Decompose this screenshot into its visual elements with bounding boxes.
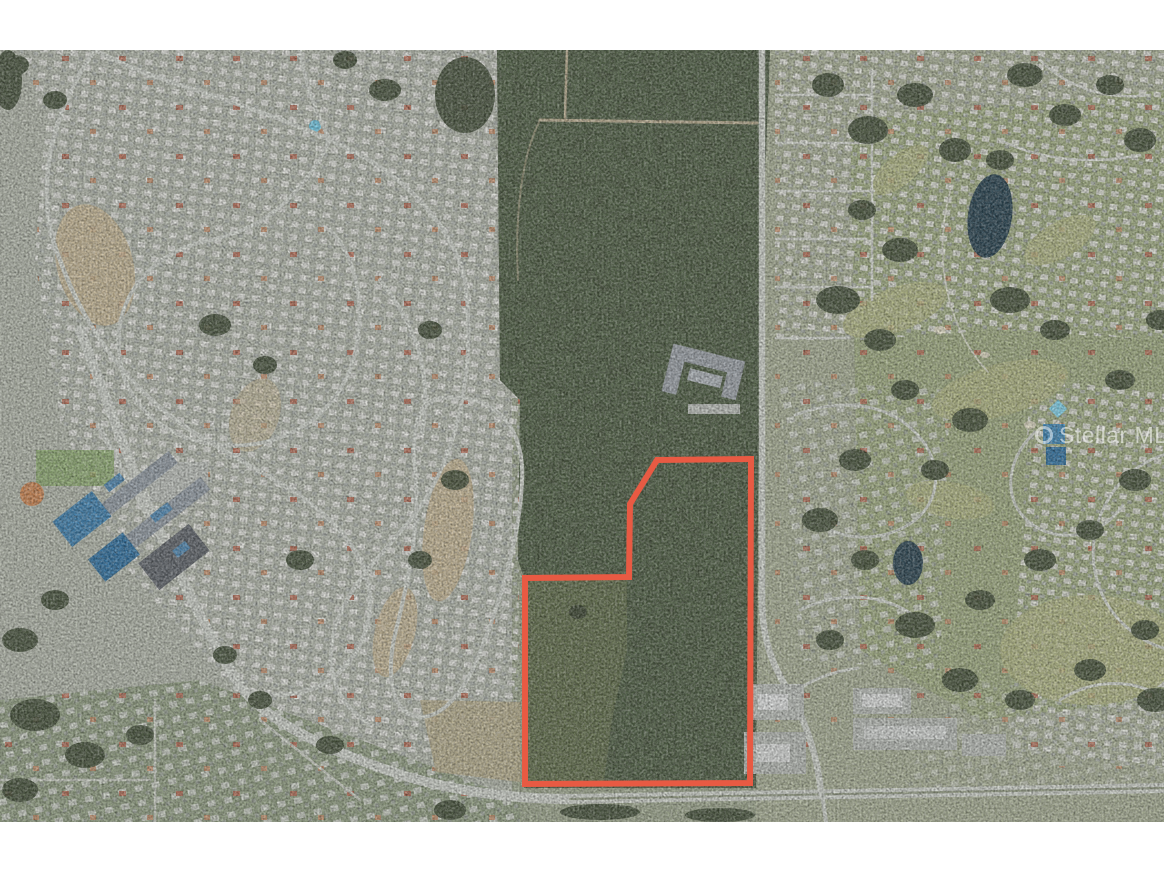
page: Stellar MLS bbox=[0, 0, 1164, 873]
bottom-letterbox bbox=[0, 822, 1164, 873]
aerial-photo: Stellar MLS bbox=[0, 50, 1164, 822]
aerial-photo-canvas bbox=[0, 50, 1164, 822]
haze-overlay bbox=[0, 50, 1164, 822]
top-letterbox bbox=[0, 0, 1164, 50]
